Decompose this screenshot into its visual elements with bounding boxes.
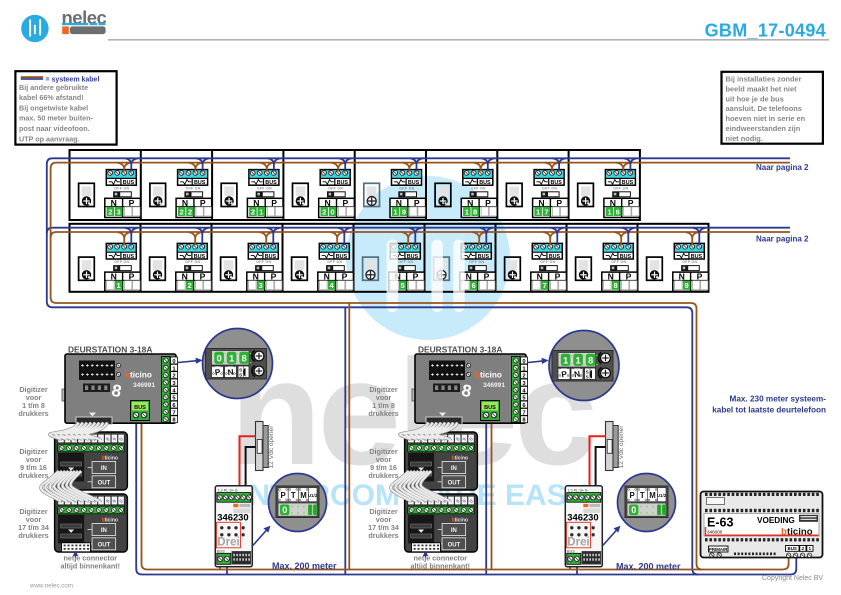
svg-text:OFF ON: OFF ON — [469, 260, 484, 264]
svg-text:BUS: BUS — [551, 180, 563, 186]
svg-text:ticino: ticino — [787, 527, 813, 538]
svg-text:3: 3 — [117, 207, 121, 216]
svg-text:7: 7 — [544, 207, 548, 216]
svg-text:12 Vdc opener: 12 Vdc opener — [268, 425, 275, 469]
svg-text:kabel 66% afstand!: kabel 66% afstand! — [19, 93, 84, 102]
svg-text:BUS: BUS — [336, 254, 348, 260]
svg-text:1: 1 — [229, 354, 235, 365]
svg-text:beeld maakt het niet: beeld maakt het niet — [726, 84, 798, 93]
svg-text:ticino: ticino — [455, 456, 468, 462]
svg-text:OUT: OUT — [448, 480, 461, 486]
svg-text:1 2 PL S+ S-: 1 2 PL S+ S- — [568, 488, 589, 492]
svg-text:BUS: BUS — [194, 254, 206, 260]
svg-text:2: 2 — [251, 207, 255, 216]
svg-text:OFF ON: OFF ON — [399, 186, 414, 190]
svg-text:8: 8 — [473, 207, 477, 216]
svg-text:OFF ON: OFF ON — [185, 186, 200, 190]
svg-text:hoeven niet in serie en: hoeven niet in serie en — [726, 114, 806, 123]
svg-text:ticino: ticino — [480, 371, 502, 380]
svg-text:IN: IN — [451, 466, 457, 472]
svg-text:OFF ON: OFF ON — [542, 186, 557, 190]
svg-text:niet nodig.: niet nodig. — [726, 134, 763, 143]
svg-text:N: N — [253, 198, 259, 208]
svg-text:BUS: BUS — [265, 180, 277, 186]
svg-text:aansluit. De telefoons: aansluit. De telefoons — [726, 104, 802, 113]
svg-text:9: 9 — [685, 281, 689, 290]
svg-text:OFF ON: OFF ON — [471, 186, 486, 190]
svg-text:max. 50 meter buiten-: max. 50 meter buiten- — [19, 114, 94, 123]
svg-text:IN: IN — [451, 528, 457, 534]
svg-text:DEURSTATION 3-18A: DEURSTATION 3-18A — [418, 345, 502, 355]
svg-text:BUS: BUS — [549, 254, 561, 260]
svg-text:3: 3 — [259, 281, 263, 290]
svg-text:Max. 200 meter: Max. 200 meter — [272, 561, 337, 571]
svg-text:N: N — [111, 198, 117, 208]
svg-text:P: P — [129, 272, 135, 282]
svg-text:7: 7 — [543, 281, 547, 290]
svg-text:drukkers: drukkers — [368, 531, 398, 540]
svg-text:OFF ON: OFF ON — [540, 260, 555, 264]
svg-text:Copyright Nelec BV: Copyright Nelec BV — [762, 575, 823, 582]
svg-text:Naar pagina 2: Naar pagina 2 — [756, 235, 809, 244]
svg-text:P: P — [343, 198, 349, 208]
svg-text:12 Vdc opener: 12 Vdc opener — [618, 425, 625, 469]
svg-text:346991: 346991 — [483, 382, 505, 389]
svg-text:2: 2 — [180, 207, 184, 216]
svg-text:BUS: BUS — [691, 254, 703, 260]
svg-text:OFF ON: OFF ON — [256, 260, 271, 264]
svg-text:Max. 200 meter: Max. 200 meter — [616, 562, 681, 572]
svg-text:IN: IN — [101, 466, 107, 472]
svg-text:drukkers: drukkers — [18, 409, 48, 418]
svg-text:M: M — [649, 491, 656, 500]
svg-text:N: N — [608, 272, 614, 282]
svg-text:N: N — [182, 272, 188, 282]
svg-text:BUS: BUS — [478, 254, 490, 260]
svg-text:eindweerstanden zijn: eindweerstanden zijn — [726, 124, 801, 133]
svg-text:P: P — [484, 272, 490, 282]
svg-text:2: 2 — [108, 207, 112, 216]
svg-text:OFF ON: OFF ON — [114, 186, 129, 190]
svg-text:2: 2 — [188, 207, 192, 216]
svg-text:P: P — [271, 272, 277, 282]
svg-text:BUS: BUS — [620, 254, 632, 260]
svg-text:8: 8 — [588, 356, 593, 367]
svg-text:E-63: E-63 — [707, 516, 733, 530]
svg-text:ticino: ticino — [455, 518, 468, 524]
svg-text:2: 2 — [188, 281, 192, 290]
svg-text:N: N — [324, 272, 330, 282]
svg-text:ticino: ticino — [105, 456, 118, 462]
svg-text:0: 0 — [330, 207, 334, 216]
svg-text:BUS: BUS — [123, 254, 135, 260]
svg-text:OFF ON: OFF ON — [114, 260, 129, 264]
svg-text:8: 8 — [614, 281, 618, 290]
svg-text:OFF ON: OFF ON — [613, 186, 628, 190]
svg-text:Drei: Drei — [217, 536, 239, 548]
svg-text:P: P — [129, 198, 135, 208]
svg-text:OFF ON: OFF ON — [327, 260, 342, 264]
svg-text:BUS: BUS — [484, 405, 496, 411]
svg-text:OUT: OUT — [98, 542, 111, 548]
svg-text:OUT: OUT — [448, 542, 461, 548]
svg-text:BUS: BUS — [479, 180, 491, 186]
svg-text:BUS: BUS — [217, 549, 225, 553]
svg-text:P: P — [629, 491, 634, 500]
svg-text:N: N — [182, 198, 188, 208]
svg-text:S: S — [239, 373, 242, 378]
svg-text:Drei: Drei — [567, 536, 589, 548]
svg-text:N: N — [679, 272, 685, 282]
svg-text:OFF ON: OFF ON — [398, 260, 413, 264]
svg-text:GBM_17-0494: GBM_17-0494 — [705, 21, 826, 41]
svg-text:BUS: BUS — [337, 180, 349, 186]
svg-text:P: P — [626, 272, 632, 282]
svg-text:P: P — [271, 198, 277, 208]
svg-text:N: N — [324, 198, 330, 208]
svg-text:N: N — [466, 272, 472, 282]
svg-text:U1/2: U1/2 — [657, 493, 667, 498]
svg-text:0: 0 — [282, 505, 287, 515]
svg-text:346230: 346230 — [217, 511, 248, 522]
svg-text:UTP op aanvraag.: UTP op aanvraag. — [19, 134, 80, 143]
svg-text:T: T — [291, 491, 296, 500]
svg-text:P: P — [200, 198, 206, 208]
svg-text:OFF ON: OFF ON — [611, 260, 626, 264]
svg-text:Bij andere gebruikte: Bij andere gebruikte — [19, 83, 88, 92]
svg-text:N: N — [467, 198, 473, 208]
svg-text:U1/2: U1/2 — [308, 493, 318, 498]
svg-text:Bij ongetwiste kabel: Bij ongetwiste kabel — [19, 103, 88, 112]
svg-text:drukkers: drukkers — [368, 409, 398, 418]
svg-text:altijd binnenkant!: altijd binnenkant! — [411, 562, 471, 571]
svg-text:BUS: BUS — [134, 405, 146, 411]
svg-text:2: 2 — [322, 207, 326, 216]
svg-text:ticino: ticino — [130, 371, 152, 380]
svg-text:BUS: BUS — [408, 180, 420, 186]
svg-text:drukkers: drukkers — [368, 471, 398, 480]
svg-text:0: 0 — [631, 505, 636, 515]
svg-text:P: P — [555, 272, 561, 282]
svg-text:www.nelec.com: www.nelec.com — [29, 583, 73, 590]
svg-text:IN: IN — [101, 528, 107, 534]
svg-text:N: N — [253, 272, 259, 282]
svg-text:Naar pagina 2: Naar pagina 2 — [756, 163, 809, 172]
svg-text:P: P — [628, 198, 634, 208]
svg-text:PRIMAIR: PRIMAIR — [709, 547, 728, 552]
svg-text:BUS: BUS — [407, 254, 419, 260]
svg-text:1: 1 — [563, 356, 569, 367]
svg-text:Max. 230 meter systeem-: Max. 230 meter systeem- — [730, 395, 827, 404]
svg-text:P: P — [697, 272, 703, 282]
svg-text:N: N — [610, 198, 616, 208]
svg-text:1: 1 — [575, 356, 581, 367]
svg-text:S: S — [586, 375, 589, 380]
svg-text:N: N — [537, 272, 543, 282]
svg-text:post naar videofoon.: post naar videofoon. — [19, 124, 90, 133]
svg-text:346000: 346000 — [707, 530, 723, 535]
svg-text:VOEDING: VOEDING — [757, 516, 795, 525]
svg-text:P: P — [485, 198, 491, 208]
svg-text:N: N — [111, 272, 117, 282]
svg-text:ticino: ticino — [105, 518, 118, 524]
svg-text:346230: 346230 — [567, 511, 598, 522]
svg-text:altijd binnenkant!: altijd binnenkant! — [61, 562, 121, 571]
svg-text:BUS: BUS — [622, 180, 634, 186]
svg-text:M: M — [300, 491, 307, 500]
svg-text:6: 6 — [472, 281, 476, 290]
svg-text:N: N — [538, 198, 544, 208]
svg-text:OUT: OUT — [98, 480, 111, 486]
svg-text:P: P — [556, 198, 562, 208]
svg-text:P: P — [414, 198, 420, 208]
svg-text:0: 0 — [216, 354, 221, 365]
svg-text:6: 6 — [616, 207, 620, 216]
svg-text:DEURSTATION 3-18A: DEURSTATION 3-18A — [68, 345, 152, 355]
svg-text:BUS: BUS — [194, 180, 206, 186]
svg-text:OFF ON: OFF ON — [185, 260, 200, 264]
svg-text:1 2 PL S+ S-: 1 2 PL S+ S- — [218, 488, 239, 492]
svg-text:BUS: BUS — [265, 254, 277, 260]
svg-text:P: P — [280, 491, 285, 500]
svg-text:OFF ON: OFF ON — [257, 186, 272, 190]
svg-text:drukkers: drukkers — [18, 531, 48, 540]
svg-text:346991: 346991 — [133, 382, 155, 389]
svg-text:uit hoe je de bus: uit hoe je de bus — [726, 94, 784, 103]
svg-text:OFF ON: OFF ON — [328, 186, 343, 190]
svg-text:T: T — [640, 491, 645, 500]
svg-text:kabel tot laatste deurtelefoon: kabel tot laatste deurtelefoon — [712, 406, 826, 415]
svg-text:8: 8 — [241, 354, 246, 365]
svg-text:Bij installaties zonder: Bij installaties zonder — [726, 75, 802, 84]
svg-text:BUS: BUS — [123, 180, 135, 186]
svg-text:drukkers: drukkers — [18, 471, 48, 480]
svg-text:P: P — [200, 272, 206, 282]
svg-text:N: N — [396, 198, 402, 208]
svg-text:BUS: BUS — [567, 549, 575, 553]
svg-text:P: P — [342, 272, 348, 282]
svg-text:BUS: BUS — [788, 546, 797, 551]
svg-text:P: P — [413, 272, 419, 282]
svg-text:9: 9 — [402, 207, 406, 216]
svg-text:OFF ON: OFF ON — [682, 260, 697, 264]
